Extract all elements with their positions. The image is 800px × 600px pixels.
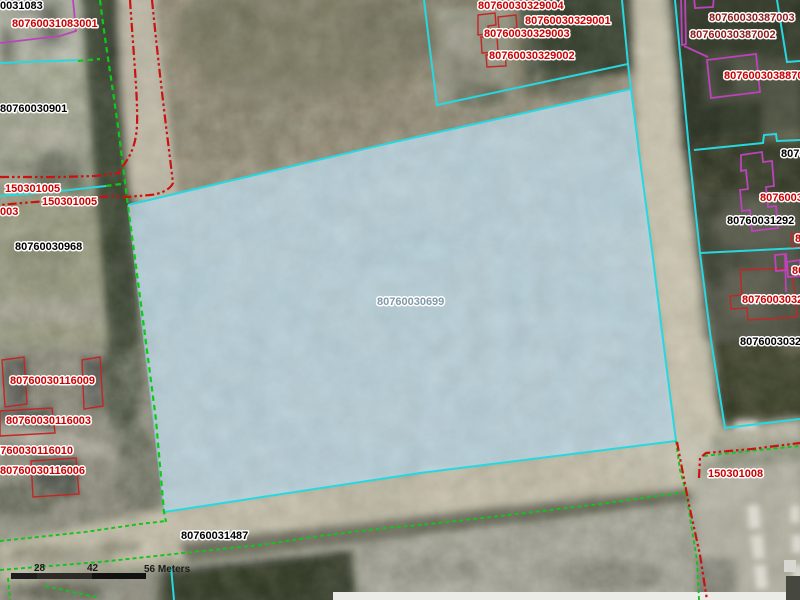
svg-text:80760030329003: 80760030329003 bbox=[484, 28, 570, 40]
svg-text:150301005: 150301005 bbox=[5, 183, 60, 195]
svg-text:80760030329002: 80760030329002 bbox=[489, 50, 575, 62]
svg-text:42: 42 bbox=[87, 563, 99, 574]
svg-text:80760030901: 80760030901 bbox=[0, 103, 67, 115]
svg-text:80760030116006: 80760030116006 bbox=[0, 465, 85, 477]
svg-text:80760030387002: 80760030387002 bbox=[690, 29, 776, 41]
svg-text:807600312: 807600312 bbox=[760, 192, 800, 204]
svg-text:80760031083: 80760031083 bbox=[0, 0, 43, 12]
svg-text:80760030116009: 80760030116009 bbox=[10, 375, 95, 387]
svg-text:80760030116010: 80760030116010 bbox=[0, 445, 73, 457]
svg-text:80760030325: 80760030325 bbox=[742, 294, 800, 306]
svg-text:80760031487: 80760031487 bbox=[181, 530, 248, 542]
svg-text:80760030699: 80760030699 bbox=[377, 296, 444, 308]
svg-text:80760031083001: 80760031083001 bbox=[12, 18, 98, 30]
svg-text:28: 28 bbox=[34, 563, 46, 574]
svg-text:150301005: 150301005 bbox=[42, 196, 97, 208]
svg-text:80760030329004: 80760030329004 bbox=[478, 0, 565, 12]
svg-text:003: 003 bbox=[0, 206, 18, 218]
svg-text:80760030387003: 80760030387003 bbox=[709, 12, 795, 24]
svg-text:80760030116003: 80760030116003 bbox=[6, 415, 91, 427]
svg-text:80760030325: 80760030325 bbox=[740, 336, 800, 348]
svg-text:80: 80 bbox=[795, 233, 800, 245]
svg-text:80760030329001: 80760030329001 bbox=[525, 15, 611, 27]
svg-text:56 Meters: 56 Meters bbox=[144, 564, 191, 575]
svg-text:150301008: 150301008 bbox=[708, 468, 763, 480]
svg-text:80760031292: 80760031292 bbox=[727, 215, 794, 227]
svg-text:80760030968: 80760030968 bbox=[15, 241, 82, 253]
svg-text:80760030388700: 80760030388700 bbox=[724, 70, 800, 82]
svg-text:80: 80 bbox=[792, 265, 800, 277]
svg-text:80760031: 80760031 bbox=[781, 148, 800, 160]
